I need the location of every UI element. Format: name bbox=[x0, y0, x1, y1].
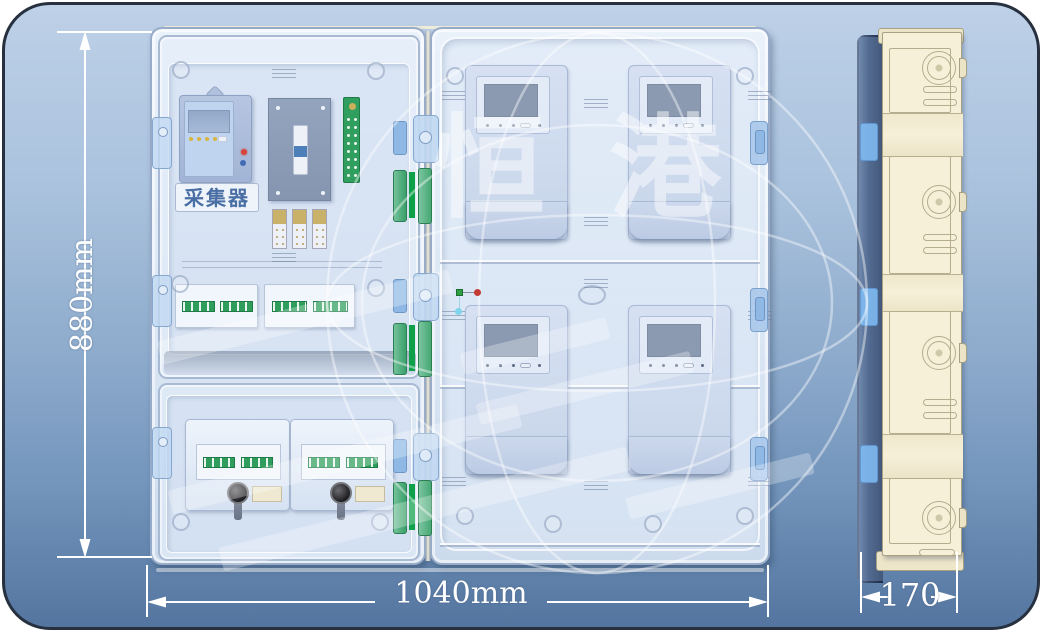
terminal-pcb-strip bbox=[343, 97, 360, 183]
hinge-pin-strip bbox=[409, 325, 415, 371]
side-section-divider bbox=[883, 274, 963, 312]
knockout-circle bbox=[367, 62, 385, 80]
center-latch bbox=[393, 273, 439, 321]
terminal-strip-green bbox=[220, 301, 253, 312]
left-door-panel: 采集器 bbox=[150, 27, 426, 565]
meter-terminal-cover bbox=[466, 201, 567, 239]
meter-ir-port bbox=[683, 363, 694, 368]
breaker-unit bbox=[185, 419, 290, 511]
electric-meter bbox=[628, 305, 731, 475]
knockout-circle bbox=[172, 61, 190, 79]
electric-meter bbox=[465, 305, 568, 475]
meter-box-front-view: 采集器 bbox=[150, 27, 770, 565]
center-latch bbox=[393, 433, 439, 481]
electric-meter bbox=[628, 65, 731, 240]
left-edge-latch bbox=[152, 427, 172, 479]
collector-display bbox=[188, 110, 230, 133]
height-dimension-label: 880mm bbox=[66, 215, 100, 375]
knockout-circle bbox=[456, 507, 474, 525]
latch-tab bbox=[393, 279, 407, 313]
hinge-bar bbox=[418, 321, 432, 377]
vent-slots bbox=[748, 91, 772, 102]
meter-led-row bbox=[486, 124, 489, 127]
terminal-strip-green bbox=[308, 457, 340, 468]
side-mount-tab bbox=[959, 192, 967, 212]
breaker-label-plate bbox=[355, 486, 385, 502]
terminal-strip-base bbox=[175, 284, 258, 328]
meter-terminal-cover bbox=[629, 201, 730, 239]
latch-tab bbox=[393, 439, 407, 473]
collector-led-row bbox=[189, 137, 219, 141]
green-hinge-pair bbox=[393, 321, 437, 377]
meter-terminal-cover bbox=[629, 436, 730, 474]
knockout-circle bbox=[736, 507, 754, 525]
knockout-circle bbox=[644, 515, 662, 533]
side-vent-slot bbox=[923, 412, 957, 419]
door-molding-ridge bbox=[440, 543, 760, 545]
side-vent-slot bbox=[923, 234, 957, 241]
green-hinge-pair bbox=[393, 168, 437, 224]
meter-led-row bbox=[649, 364, 652, 367]
side-section-divider bbox=[883, 434, 963, 479]
terminal-strip-base bbox=[264, 284, 355, 328]
meter-display-frame bbox=[639, 76, 713, 134]
knockout-circle bbox=[544, 515, 562, 533]
right-edge-latch bbox=[750, 121, 768, 165]
vent-slots bbox=[272, 69, 296, 80]
vent-slots bbox=[584, 481, 608, 492]
knockout-circle bbox=[367, 279, 385, 297]
meter-terminal-cover bbox=[466, 436, 567, 474]
collector-blue-led bbox=[240, 160, 246, 166]
hinge-bar bbox=[393, 323, 407, 375]
wiring-channel-line bbox=[182, 267, 382, 268]
terminal-strip-green bbox=[203, 457, 235, 468]
hinge-pin-strip bbox=[409, 484, 415, 530]
meter-display-frame bbox=[476, 316, 550, 374]
breaker-unit-panel bbox=[301, 444, 386, 480]
side-vent-slot bbox=[923, 399, 957, 406]
vent-slots bbox=[442, 477, 466, 488]
meter-led-row bbox=[649, 124, 652, 127]
hinge-bar bbox=[393, 170, 407, 222]
width-dimension-label: 1040mm bbox=[381, 577, 541, 611]
vent-slots bbox=[272, 253, 296, 264]
meter-lcd-screen bbox=[647, 324, 701, 357]
side-latch-highlight bbox=[860, 445, 878, 483]
depth-dimension-label: 170 bbox=[860, 578, 960, 612]
rendering-card: 采集器 bbox=[2, 2, 1040, 630]
hinge-bar bbox=[418, 168, 432, 224]
breaker-knob bbox=[227, 482, 249, 504]
meter-lcd-screen bbox=[484, 84, 538, 117]
side-vent-slot bbox=[923, 247, 957, 254]
vent-slots bbox=[584, 217, 608, 228]
door-molding-ridge bbox=[440, 260, 760, 262]
terminal-strip-green bbox=[346, 457, 378, 468]
breaker-unit bbox=[290, 419, 394, 511]
right-edge-latch bbox=[750, 288, 768, 332]
knockout-circle bbox=[371, 513, 389, 531]
meter-box-side-view bbox=[848, 23, 970, 603]
collector-nameplate-text: 采集器 bbox=[184, 188, 250, 208]
hinge-bar bbox=[418, 480, 432, 536]
vent-slots bbox=[442, 311, 466, 322]
side-knockout-circle bbox=[922, 501, 956, 535]
meter-display-frame bbox=[639, 316, 713, 374]
knockout-circle bbox=[736, 67, 754, 85]
meter-display-frame bbox=[476, 76, 550, 134]
meter-lcd-screen bbox=[647, 84, 701, 117]
meter-ir-port bbox=[520, 123, 531, 128]
side-enclosure-body bbox=[882, 32, 962, 556]
side-knockout-circle bbox=[922, 185, 956, 219]
meter-ir-port bbox=[520, 363, 531, 368]
breaker-knob bbox=[330, 482, 352, 504]
side-latch-highlight bbox=[860, 123, 878, 161]
latch-screw bbox=[419, 289, 432, 302]
knockout-circle bbox=[172, 513, 190, 531]
latch-screw bbox=[419, 449, 432, 462]
breaker-label-plate bbox=[252, 486, 282, 502]
right-edge-latch bbox=[750, 437, 768, 481]
hinge-pin-strip bbox=[409, 172, 415, 218]
terminal-strip-green bbox=[313, 301, 348, 312]
side-mount-tab bbox=[959, 58, 967, 78]
side-mount-tab bbox=[959, 508, 967, 528]
vent-slots bbox=[584, 99, 608, 110]
hinge-bar bbox=[393, 482, 407, 534]
vent-slots bbox=[584, 279, 608, 290]
latch-screw bbox=[419, 131, 432, 144]
collector-nameplate: 采集器 bbox=[175, 183, 259, 212]
green-hinge-pair bbox=[393, 480, 437, 536]
collector-red-led bbox=[241, 149, 247, 155]
electric-meter bbox=[465, 65, 568, 240]
side-knockout-circle bbox=[922, 51, 956, 85]
terminal-block bbox=[292, 209, 307, 249]
side-latch-highlight bbox=[860, 288, 878, 326]
terminal-block bbox=[312, 209, 327, 249]
side-section-divider bbox=[883, 113, 963, 157]
meter-led-row bbox=[486, 364, 489, 367]
left-edge-latch bbox=[152, 117, 172, 169]
terminal-strip-green bbox=[272, 301, 307, 312]
center-latch bbox=[393, 115, 439, 163]
vent-slots bbox=[442, 91, 466, 102]
terminal-block bbox=[272, 209, 287, 249]
latch-tab bbox=[393, 121, 407, 155]
side-knockout-circle bbox=[922, 336, 956, 370]
breaker-rocker-switch bbox=[293, 125, 308, 175]
collector-port bbox=[218, 136, 227, 142]
side-vent-slot bbox=[923, 86, 957, 93]
right-door-panel bbox=[430, 27, 770, 565]
main-circuit-breaker bbox=[268, 98, 331, 201]
meter-lcd-screen bbox=[484, 324, 538, 357]
side-vent-slot bbox=[923, 99, 957, 106]
side-vent-slot bbox=[919, 549, 955, 556]
breaker-unit-panel bbox=[196, 444, 281, 480]
terminal-strip-green bbox=[241, 457, 273, 468]
side-mount-tab bbox=[959, 343, 967, 363]
knockout-circle bbox=[171, 275, 189, 293]
product-image-canvas: 采集器 bbox=[0, 0, 1042, 632]
compartment-divider-shadow bbox=[164, 351, 416, 375]
meter-ir-port bbox=[683, 123, 694, 128]
knockout-circle bbox=[446, 67, 464, 85]
breaker-rocker-band bbox=[294, 146, 307, 157]
left-edge-latch bbox=[152, 275, 172, 327]
terminal-strip-green bbox=[182, 301, 215, 312]
